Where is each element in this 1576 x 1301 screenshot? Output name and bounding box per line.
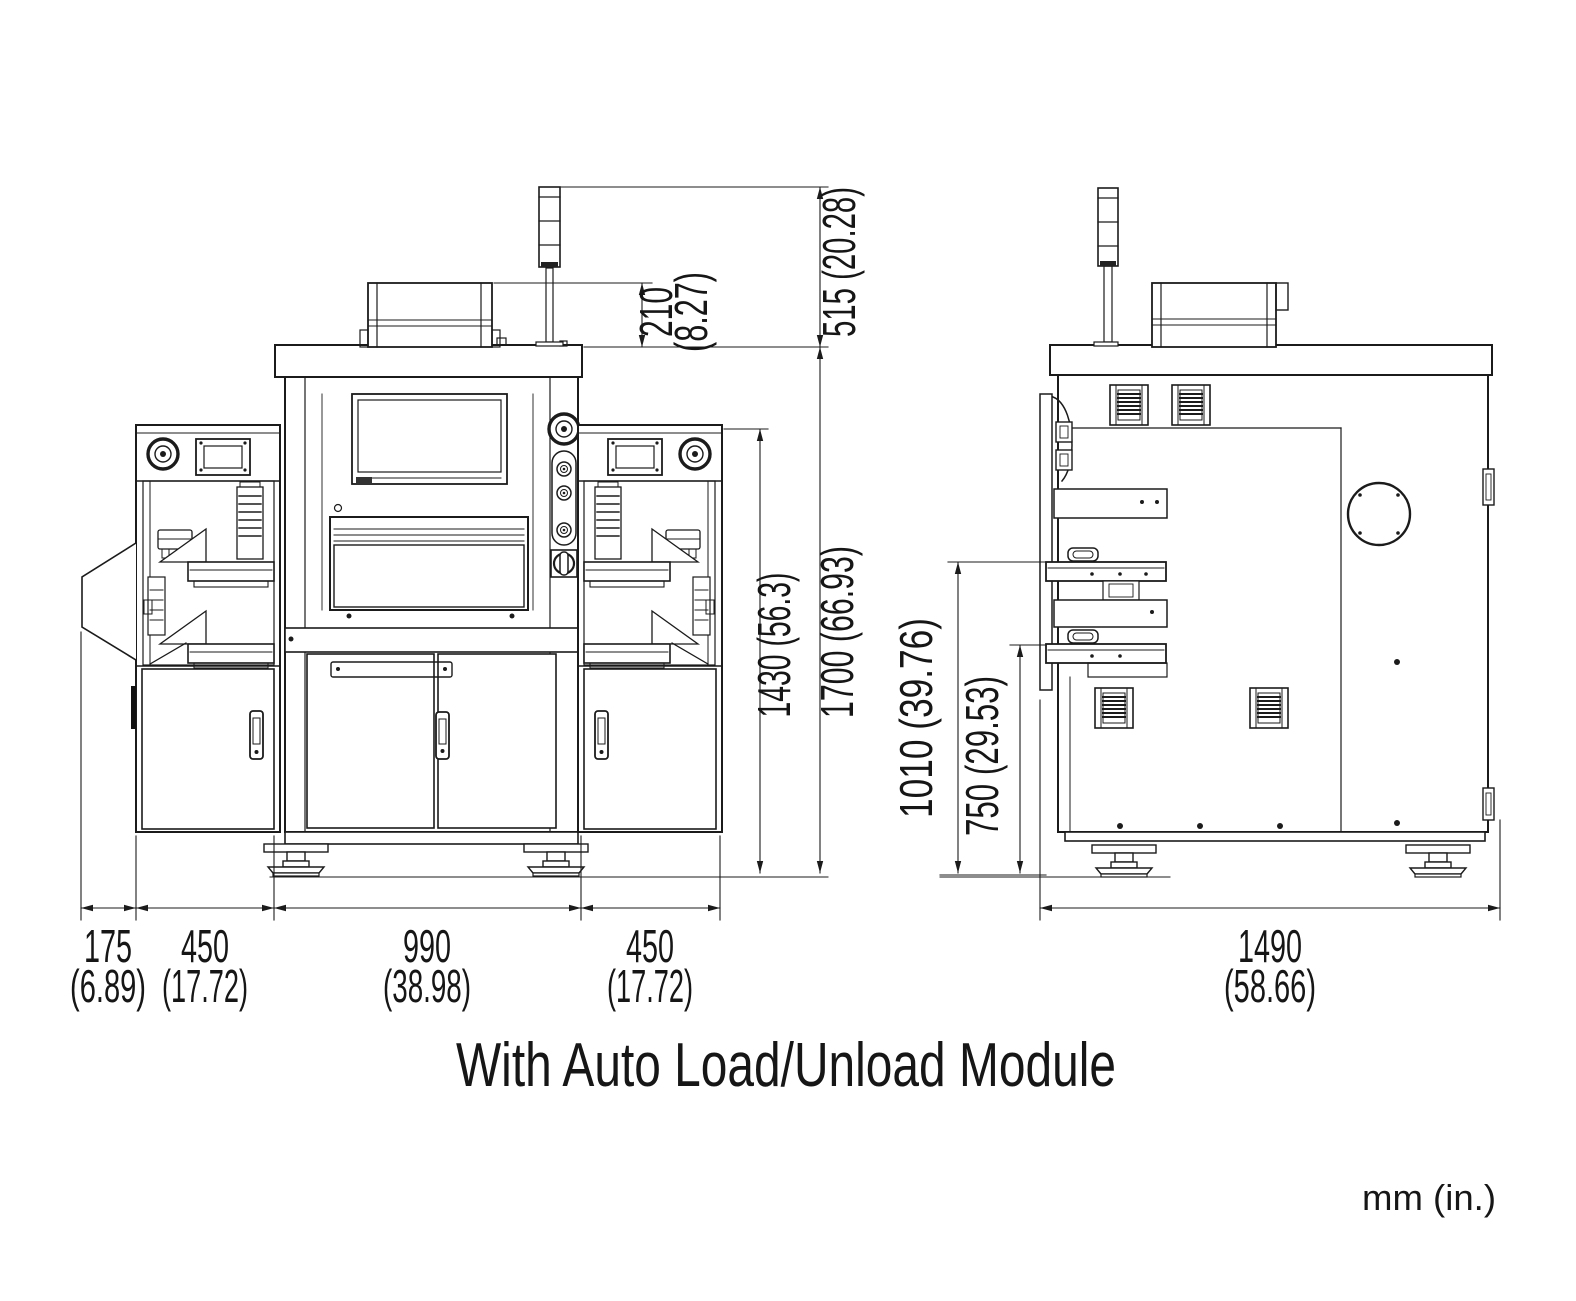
dimension-drawing-page: 210 (8.27) 515 (20.28) 1430 (56.3) 1700 … [0,0,1576,1301]
control-panel-column [549,414,579,577]
top-box-side [1152,283,1288,347]
units-note: mm (in.) [1362,1177,1496,1218]
magazine-handle-icon [1068,548,1098,561]
dim-upper-tray-height: 1010 (39.76) [890,618,942,818]
dim-signal-tower-height: 515 (20.28) [813,187,865,337]
right-unload-module [578,425,722,832]
dim-top-box-in: (8.27) [665,272,717,352]
dim-chute-in: (6.89) [70,960,146,1012]
dim-left-module-in: (17.72) [162,960,248,1012]
left-load-module [136,425,280,832]
dim-lower-tray-height: 750 (29.53) [956,676,1008,836]
roof-cap [275,345,582,377]
mid-rail [285,628,578,652]
base-frame [285,832,578,844]
dim-depth-in: (58.66) [1224,960,1316,1012]
dim-center-in: (38.98) [383,960,471,1012]
top-box-front [360,283,500,347]
dim-module-height: 1430 (56.3) [748,573,800,718]
drawing-title: With Auto Load/Unload Module [456,1031,1116,1100]
process-window [330,517,528,619]
touchscreen-display [352,394,507,484]
technical-drawing: 210 (8.27) 515 (20.28) 1430 (56.3) 1700 … [0,0,1576,1301]
dim-overall-height: 1700 (66.93) [811,546,863,718]
dim-right-module-in: (17.72) [607,960,693,1012]
side-roof-cap [1050,345,1492,375]
front-center-body [264,338,588,876]
cabinet-doors [307,654,556,828]
magazine-handle-icon [1068,630,1098,643]
main-power-switch-icon [551,550,577,577]
